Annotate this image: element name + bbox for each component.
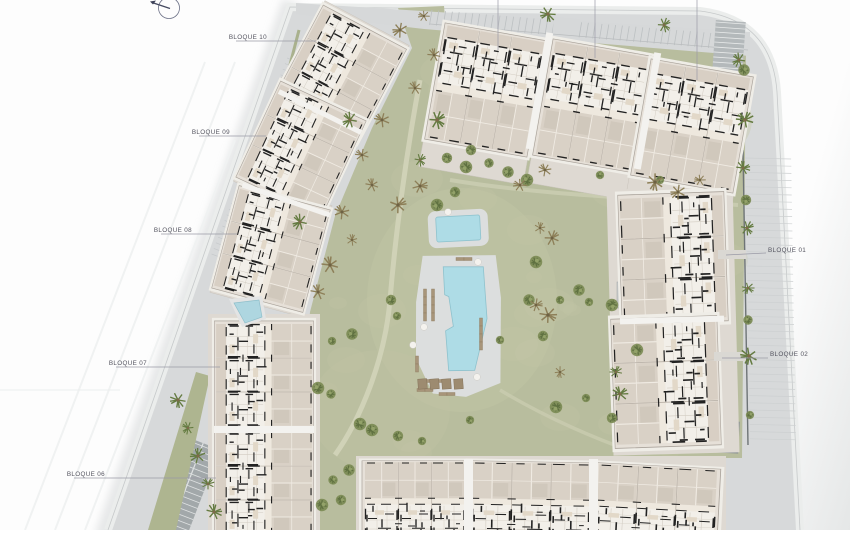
svg-text:BLOQUE 07: BLOQUE 07 xyxy=(109,360,147,367)
svg-text:BLOQUE 09: BLOQUE 09 xyxy=(192,129,230,136)
svg-text:BLOQUE 10: BLOQUE 10 xyxy=(229,34,267,41)
svg-text:BLOQUE 02: BLOQUE 02 xyxy=(770,351,808,358)
svg-text:BLOQUE 06: BLOQUE 06 xyxy=(67,471,105,478)
svg-text:BLOQUE 08: BLOQUE 08 xyxy=(154,227,192,234)
svg-text:BLOQUE 01: BLOQUE 01 xyxy=(768,247,806,254)
